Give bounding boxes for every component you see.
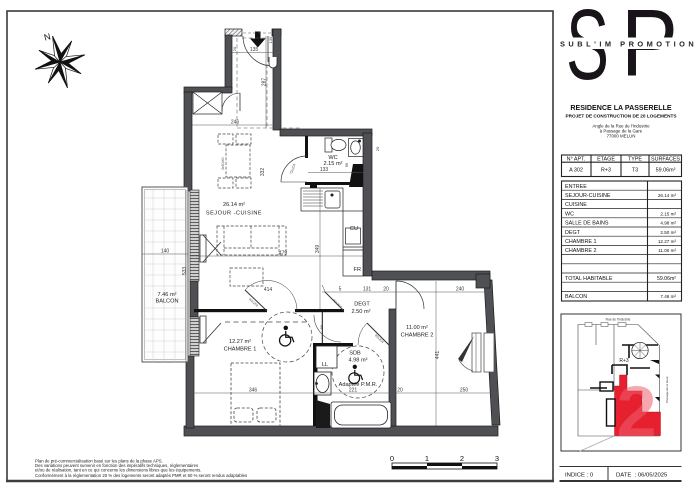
svg-text:2.50 m²: 2.50 m² bbox=[352, 309, 371, 315]
svg-text:Rue de l'Industrie: Rue de l'Industrie bbox=[606, 318, 631, 322]
svg-text:CUISINE: CUISINE bbox=[565, 202, 587, 208]
svg-text:PROJET DE CONSTRUCTION DE 20 L: PROJET DE CONSTRUCTION DE 20 LOGEMENTS bbox=[566, 114, 677, 119]
svg-text:135: 135 bbox=[250, 47, 259, 53]
svg-text:349: 349 bbox=[315, 245, 321, 254]
svg-text:Conformément à la réglementati: Conformément à la réglementation 20 % de… bbox=[35, 473, 247, 478]
svg-text:2: 2 bbox=[460, 454, 464, 463]
svg-text:20: 20 bbox=[383, 287, 389, 293]
svg-text:0: 0 bbox=[390, 454, 394, 463]
svg-text:N° APT.: N° APT. bbox=[567, 157, 586, 163]
svg-text:441: 441 bbox=[435, 351, 441, 360]
svg-text:346: 346 bbox=[249, 388, 258, 394]
svg-text:26.14 m²: 26.14 m² bbox=[658, 193, 677, 198]
svg-text:287: 287 bbox=[262, 78, 268, 87]
svg-text:CHAMBRE 2: CHAMBRE 2 bbox=[565, 248, 596, 254]
svg-text:SDB: SDB bbox=[349, 351, 361, 357]
svg-text:133: 133 bbox=[320, 167, 329, 173]
svg-text:2.15 m²: 2.15 m² bbox=[660, 211, 676, 216]
svg-text:T3: T3 bbox=[632, 168, 638, 174]
svg-text:SUBL'IM PROMOTION: SUBL'IM PROMOTION bbox=[560, 40, 697, 49]
svg-text:59.06m²: 59.06m² bbox=[657, 276, 676, 282]
svg-text:246: 246 bbox=[231, 120, 240, 126]
svg-text:131: 131 bbox=[363, 287, 372, 293]
svg-text:DEGT: DEGT bbox=[354, 302, 370, 308]
svg-text:S: S bbox=[566, 0, 609, 101]
svg-text:20: 20 bbox=[397, 388, 403, 394]
svg-text:INDICE : 0: INDICE : 0 bbox=[565, 473, 594, 479]
svg-text:221: 221 bbox=[349, 388, 358, 394]
svg-text:CHAMBRE 1: CHAMBRE 1 bbox=[224, 347, 257, 353]
svg-text:12.27 m²: 12.27 m² bbox=[229, 339, 251, 345]
svg-text:96: 96 bbox=[344, 162, 349, 167]
svg-text:20: 20 bbox=[375, 146, 380, 151]
svg-text:CHAMBRE 1: CHAMBRE 1 bbox=[565, 239, 596, 245]
svg-text:479: 479 bbox=[279, 251, 288, 257]
svg-text:414: 414 bbox=[264, 287, 273, 293]
svg-text:R+3: R+3 bbox=[619, 358, 629, 364]
svg-text:20: 20 bbox=[232, 46, 237, 51]
svg-text:CHAMBRE 2: CHAMBRE 2 bbox=[401, 333, 434, 339]
svg-text:Adaptée P.M.R.: Adaptée P.M.R. bbox=[339, 382, 378, 388]
svg-text:143x94: 143x94 bbox=[404, 275, 415, 279]
svg-text:4.98 m²: 4.98 m² bbox=[660, 221, 676, 226]
svg-text:2.50 m²: 2.50 m² bbox=[660, 230, 676, 235]
svg-text:SEJOUR -CUISINE: SEJOUR -CUISINE bbox=[206, 211, 262, 217]
svg-text:ENTREE: ENTREE bbox=[565, 184, 587, 190]
svg-text:TYPE: TYPE bbox=[628, 157, 642, 163]
svg-text:135: 135 bbox=[268, 36, 273, 43]
svg-text:BALCON: BALCON bbox=[565, 294, 587, 300]
svg-text:SURFACES: SURFACES bbox=[651, 157, 680, 163]
svg-text:LL: LL bbox=[322, 362, 328, 368]
svg-text:3: 3 bbox=[495, 454, 499, 463]
svg-text:CU: CU bbox=[350, 226, 358, 232]
svg-text:1: 1 bbox=[425, 454, 429, 463]
svg-text:BALCON: BALCON bbox=[155, 299, 178, 305]
svg-text:ETAGE: ETAGE bbox=[597, 157, 615, 163]
svg-text:DATE : 06/05/2025: DATE : 06/05/2025 bbox=[616, 473, 668, 479]
svg-text:SALLE DE BAINS: SALLE DE BAINS bbox=[565, 221, 609, 227]
svg-text:77000 MELUN: 77000 MELUN bbox=[607, 134, 636, 139]
svg-text:240: 240 bbox=[456, 287, 465, 293]
svg-text:SEJOUR-CUISINE: SEJOUR-CUISINE bbox=[565, 193, 611, 199]
svg-text:4.98 m²: 4.98 m² bbox=[349, 358, 368, 364]
svg-text:140: 140 bbox=[161, 249, 170, 255]
svg-text:11.00 m²: 11.00 m² bbox=[658, 248, 676, 253]
svg-text:332: 332 bbox=[260, 168, 266, 177]
svg-text:3x60x60: 3x60x60 bbox=[221, 157, 225, 170]
svg-text:90: 90 bbox=[319, 324, 324, 329]
svg-text:R+3: R+3 bbox=[601, 168, 611, 174]
svg-text:26.14 m²: 26.14 m² bbox=[223, 202, 245, 208]
svg-text:FR: FR bbox=[354, 267, 361, 273]
svg-text:RESIDENCE LA PASSERELLE: RESIDENCE LA PASSERELLE bbox=[570, 104, 672, 112]
svg-text:TOTAL HABITABLE: TOTAL HABITABLE bbox=[565, 276, 613, 282]
svg-text:7.46 m²: 7.46 m² bbox=[158, 292, 177, 298]
svg-text:59.06m²: 59.06m² bbox=[656, 168, 676, 174]
svg-text:12.27 m²: 12.27 m² bbox=[658, 239, 677, 244]
svg-text:A 302: A 302 bbox=[569, 168, 583, 174]
svg-text:533: 533 bbox=[182, 267, 188, 276]
svg-text:250: 250 bbox=[460, 388, 469, 394]
svg-text:et/ou de réalisation, tant en: et/ou de réalisation, tant en ce qui con… bbox=[35, 468, 202, 473]
svg-text:11.00 m²: 11.00 m² bbox=[406, 325, 428, 331]
svg-text:7.46 m²: 7.46 m² bbox=[660, 294, 676, 299]
svg-text:WC: WC bbox=[565, 211, 574, 217]
svg-text:DEGT: DEGT bbox=[565, 230, 581, 236]
svg-text:Passage de la Gare: Passage de la Gare bbox=[665, 376, 669, 403]
svg-text:5: 5 bbox=[339, 287, 342, 293]
svg-text:2: 2 bbox=[616, 373, 656, 453]
